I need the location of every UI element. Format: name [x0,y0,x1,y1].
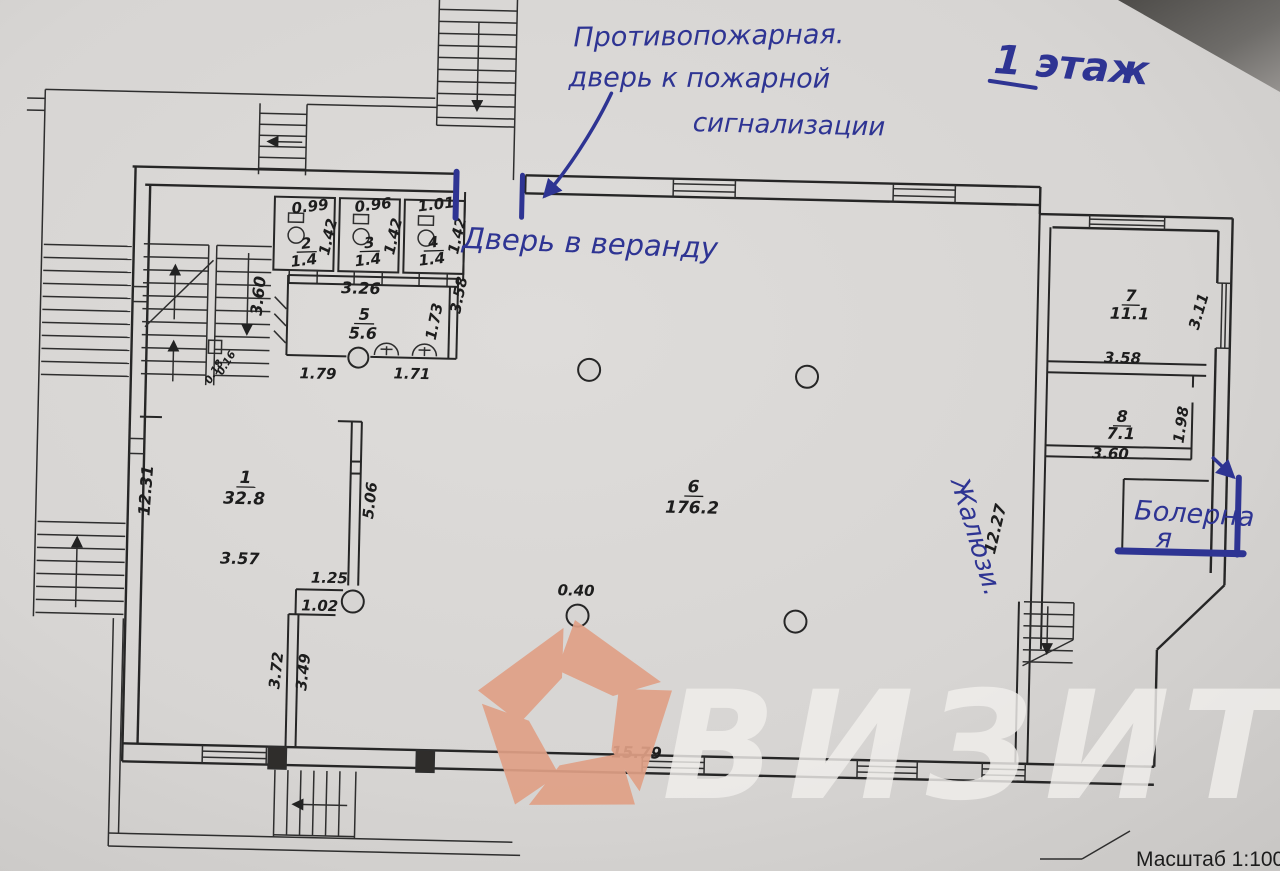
room5-area: 5.6 [349,323,378,343]
dim-room7-width: 3.58 [1104,349,1141,368]
room4-area: 1.4 [418,249,446,270]
room8-area: 7.1 [1106,424,1135,444]
fire-note-line1: Противопожарная. [573,19,844,53]
room1-area: 32.8 [223,489,266,510]
dim-room5-bottom-left: 1.79 [299,364,336,383]
fire-door-mark-right [522,175,523,217]
room1-number: 1 [239,468,251,488]
room5-number: 5 [359,305,371,324]
vizit-watermark-text: ВИЗИТ [662,660,1280,834]
dim-room5-top: 3.26 [341,278,381,298]
fire-door-mark-left [456,172,457,218]
boiler-wall-mark-bottom [1118,551,1243,554]
dim-niche-b: 1.02 [301,596,338,615]
dim-room1-width: 3.57 [220,549,261,569]
room7-area: 11.1 [1110,304,1150,324]
room6-area: 176.2 [665,498,719,519]
room2-area: 1.4 [290,250,318,271]
fire-note-line3: сигнализации [692,108,885,142]
scale-label: Масштаб 1:100 [1136,848,1280,871]
boiler-wall-mark-right [1237,478,1239,555]
fire-note-line2: дверь к пожарной [568,62,831,94]
dim-column-diameter: 0.40 [557,581,594,600]
room6-number: 6 [687,477,699,497]
dim-left-length: 12.31 [134,465,157,517]
dim-room5-bottom-right: 1.71 [393,364,430,383]
room3-area: 1.4 [354,249,382,270]
floorplan-photo: 0.99 0.96 1.01 1.42 1.42 1.42 3.26 1.73 … [0,0,1280,871]
room7-number: 7 [1125,286,1137,305]
dim-niche-a: 1.25 [311,569,348,588]
dim-room8-width: 3.60 [1092,444,1129,463]
floorplan-canvas: 0.99 0.96 1.01 1.42 1.42 1.42 3.26 1.73 … [0,0,1280,871]
